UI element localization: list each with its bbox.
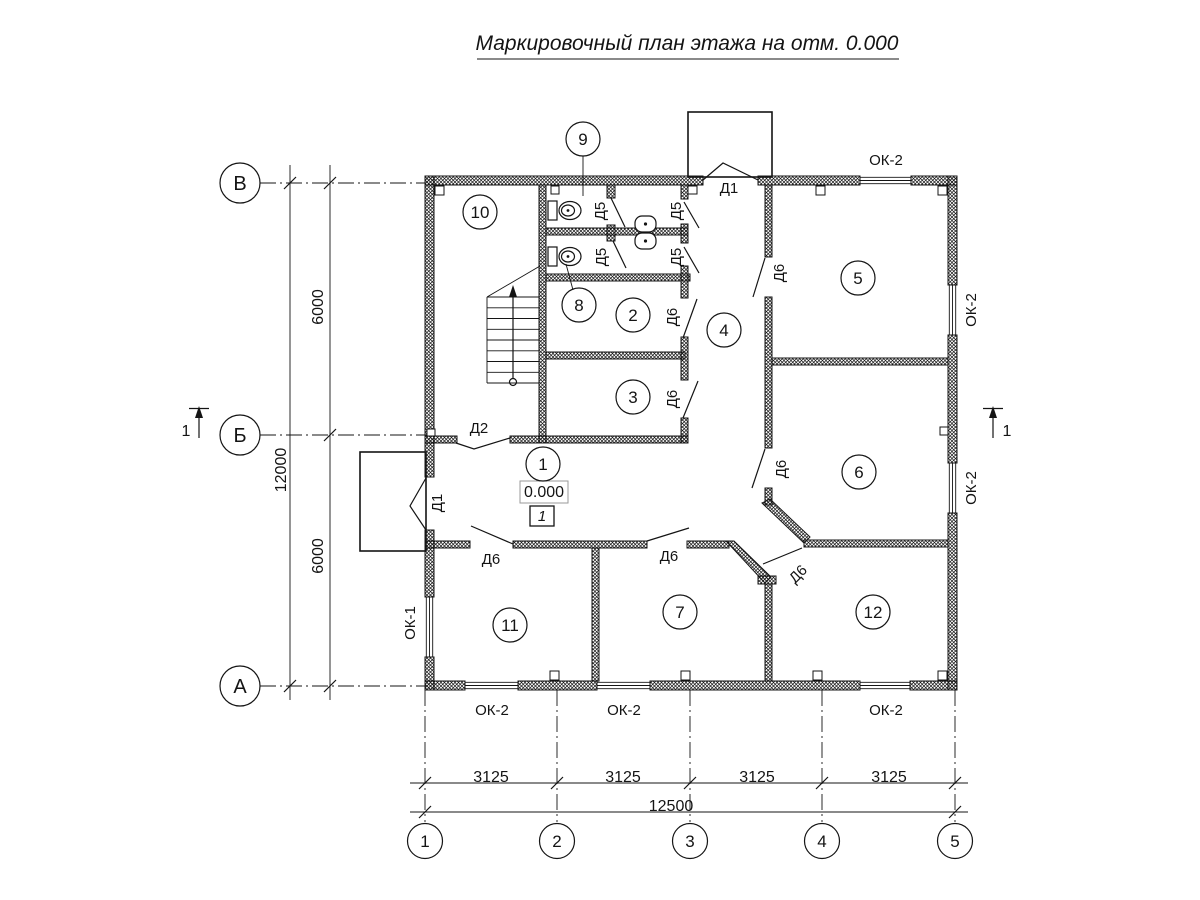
window-ok1-left: [426, 597, 432, 657]
axis-row-label: Б: [233, 425, 246, 447]
room-number: 3: [628, 388, 637, 407]
door-mark-label: Д5: [668, 202, 685, 221]
axis-row-label: А: [233, 676, 247, 698]
door-leaves: [410, 163, 802, 564]
window-mark-label: ОК-1: [402, 606, 419, 640]
door-mark-label: Д5: [593, 248, 610, 267]
level-number: 1: [538, 508, 546, 525]
stair-start-mark: [510, 379, 517, 386]
axis-col-label: 5: [950, 832, 959, 851]
drawing-sheet: Маркировочный план этажа на отм. 0.000: [0, 0, 1200, 900]
elevation-mark: 0.000 1: [520, 481, 568, 526]
axis-col-label: 1: [420, 832, 429, 851]
section-label: 1: [182, 423, 191, 440]
door-d1-left: [410, 478, 426, 530]
stair-up-arrow: [509, 285, 517, 297]
room-number: 6: [854, 463, 863, 482]
window-ok2-bottom-3: [860, 682, 910, 688]
room-number: 8: [574, 296, 583, 315]
window-ok2-top: [860, 177, 911, 183]
door-d5-stall1: [611, 198, 625, 227]
window-mark-labels: ОК-2ОК-2ОК-2ОК-1ОК-2ОК-2ОК-2: [402, 152, 980, 719]
door-mark-label: Д6: [482, 551, 501, 568]
window-mark-label: ОК-2: [869, 152, 903, 169]
sink-1: [635, 216, 656, 232]
section-mark-left: [189, 406, 209, 438]
section-marks: [189, 406, 1003, 438]
dimension-label: 6000: [310, 538, 327, 574]
dimension-label: 3125: [605, 769, 641, 786]
window-ok2-bottom-2: [597, 682, 650, 688]
room-number: 5: [853, 269, 862, 288]
room-number: 1: [538, 455, 547, 474]
axis-row-label: В: [233, 173, 246, 195]
axis-col-bubbles: 12345: [408, 824, 973, 859]
door-mark-label: Д1: [720, 180, 739, 197]
door-d6-room2: [683, 299, 697, 338]
door-mark-label: Д6: [664, 390, 681, 409]
axis-row-bubbles: ВБА: [220, 163, 260, 706]
page-title: Маркировочный план этажа на отм. 0.000: [476, 32, 899, 55]
door-mark-label: Д6: [660, 548, 679, 565]
window-mark-label: ОК-2: [963, 293, 980, 327]
dimension-label: 3125: [739, 769, 775, 786]
room-number: 9: [578, 130, 587, 149]
door-d6-room6: [752, 449, 765, 488]
door-d2: [456, 438, 510, 449]
window-mark-label: ОК-2: [963, 471, 980, 505]
room-number: 11: [501, 616, 519, 635]
window-ok2-right-upper: [949, 285, 955, 335]
door-mark-labels: Д1Д1Д2Д5Д5Д5Д5Д6Д6Д6Д6Д6Д6Д6: [429, 180, 811, 587]
staircase: [487, 266, 540, 386]
door-d6-room11: [471, 526, 513, 544]
section-label: 1: [1003, 423, 1012, 440]
window-mark-label: ОК-2: [869, 702, 903, 719]
door-mark-label: Д6: [664, 308, 681, 327]
door-mark-label: Д6: [773, 460, 790, 479]
dimension-label: 12000: [273, 448, 290, 493]
toilet-2: [548, 247, 581, 266]
room-number: 2: [628, 306, 637, 325]
dimension-label: 3125: [871, 769, 907, 786]
door-mark-label: Д5: [668, 248, 685, 267]
door-d6-room7: [647, 528, 689, 541]
dimension-labels: 1200060006000312531253125312512500: [273, 289, 907, 815]
axis-col-label: 2: [552, 832, 561, 851]
elevation-value: 0.000: [524, 484, 564, 501]
left-porch: [360, 452, 426, 551]
door-mark-label: Д6: [771, 264, 788, 283]
axis-col-label: 3: [685, 832, 694, 851]
door-d6-room3: [683, 381, 698, 418]
door-mark-label: Д1: [429, 494, 446, 513]
window-ok2-bottom-1: [465, 682, 518, 688]
window-ok2-right-lower: [949, 463, 955, 513]
door-d6-room12: [763, 548, 802, 564]
sink-2: [635, 233, 656, 249]
section-mark-right: [983, 406, 1003, 438]
dimension-label: 12500: [649, 798, 694, 815]
door-d6-room5: [753, 258, 765, 297]
door-mark-label: Д2: [470, 420, 489, 437]
dimension-label: 6000: [310, 289, 327, 325]
floor-plan-drawing: Маркировочный план этажа на отм. 0.000: [0, 0, 1200, 900]
room-number: 10: [471, 203, 490, 222]
dimension-label: 3125: [473, 769, 509, 786]
door-mark-label: Д5: [592, 202, 609, 221]
left-dimension-chain: [284, 165, 336, 700]
toilet-1: [548, 201, 581, 220]
window-mark-label: ОК-2: [475, 702, 509, 719]
axis-col-label: 4: [817, 832, 826, 851]
door-mark-label: Д6: [786, 562, 811, 587]
window-mark-label: ОК-2: [607, 702, 641, 719]
top-porch: [688, 112, 772, 177]
door-d5-stall2: [613, 241, 626, 268]
room-number: 4: [719, 321, 728, 340]
room-number: 7: [675, 603, 684, 622]
room-number: 12: [864, 603, 883, 622]
